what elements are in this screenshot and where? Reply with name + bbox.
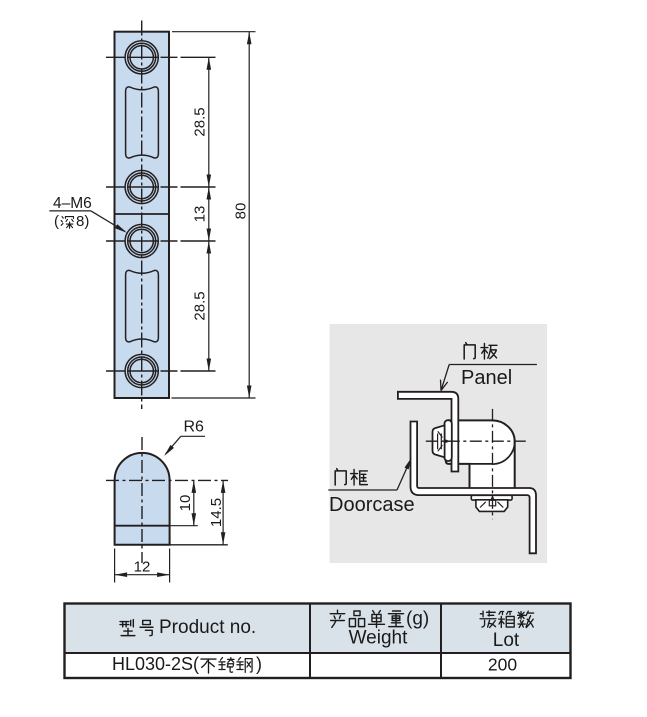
svg-text:13: 13 (192, 206, 209, 223)
svg-text:28.5: 28.5 (192, 291, 209, 320)
svg-text:Product no.: Product no. (159, 617, 256, 638)
svg-text:(g): (g) (406, 609, 429, 630)
svg-text:8): 8) (76, 213, 89, 230)
svg-text:4–M6: 4–M6 (53, 195, 92, 212)
svg-text:HL030-2S(: HL030-2S( (112, 654, 199, 674)
svg-text:10: 10 (177, 495, 194, 512)
svg-text:200: 200 (488, 655, 517, 675)
svg-text:14.5: 14.5 (208, 498, 225, 527)
svg-text:Doorcase: Doorcase (329, 494, 415, 516)
svg-text:Panel: Panel (461, 367, 512, 389)
svg-text:12: 12 (134, 559, 151, 576)
svg-text:): ) (256, 654, 262, 674)
svg-text:28.5: 28.5 (192, 107, 209, 136)
svg-text:R6: R6 (184, 419, 205, 436)
svg-text:Weight: Weight (349, 628, 409, 649)
svg-text:Lot: Lot (493, 630, 520, 651)
svg-text:80: 80 (233, 203, 250, 220)
svg-text:(: ( (54, 213, 59, 230)
